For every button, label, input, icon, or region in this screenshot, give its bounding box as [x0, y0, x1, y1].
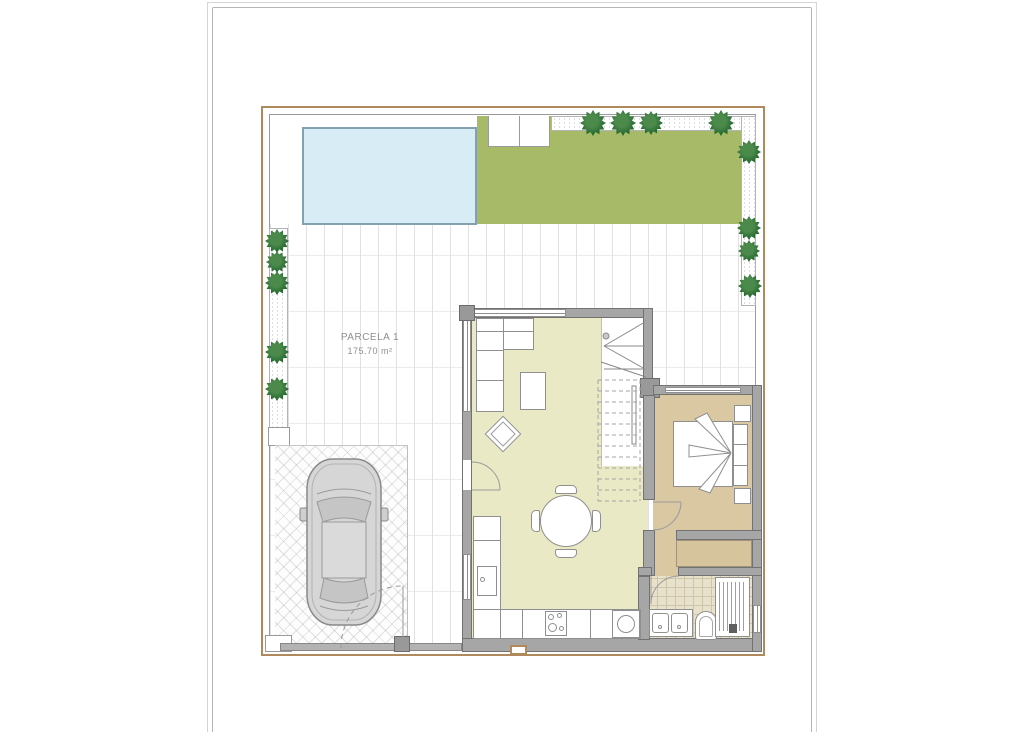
pillar-top-left [459, 305, 475, 321]
parcel-area-label: 175.70 m² [310, 346, 430, 356]
chair-north [555, 485, 577, 494]
parcel-name-label: PARCELA 1 [310, 332, 430, 343]
window-living-top [472, 309, 566, 317]
closet-block [676, 540, 752, 567]
toilet-bowl [699, 616, 713, 637]
shower-drain [729, 624, 737, 633]
washing-machine-door [617, 615, 635, 633]
basin-drain-right [677, 625, 681, 629]
window-living-left [463, 320, 471, 412]
sofa-cushion-line-3 [476, 380, 504, 381]
staircase-area [601, 318, 645, 466]
sofa-cushion-line-2 [476, 350, 504, 351]
pedestrian-gate-marker [510, 645, 527, 655]
nightstand-top [734, 405, 751, 422]
headboard-line-1 [733, 444, 748, 445]
window-shower [753, 605, 761, 633]
structure-divider-line [519, 116, 520, 146]
fence-bottom-bar [280, 643, 462, 651]
chair-east [592, 510, 601, 532]
washbasin-left [652, 613, 669, 633]
counter-divider-3 [522, 609, 523, 639]
window-bedroom [665, 387, 741, 393]
gate-pillar [394, 636, 410, 652]
wall-bedroom-bottom [676, 530, 762, 540]
counter-divider-1 [473, 540, 501, 541]
burner-4 [559, 626, 564, 631]
washbasin-right [671, 613, 688, 633]
sofa-left-section [476, 318, 504, 412]
wall-divider-upper [643, 395, 655, 500]
garden-corner-structure [488, 116, 550, 147]
gravel-strip-left [269, 228, 288, 445]
front-door-opening [463, 460, 471, 490]
sofa-cushion-line-1 [476, 331, 534, 332]
burner-2 [557, 613, 562, 618]
floor-plan-page: PARCELA 1 175.70 m² [0, 0, 1024, 732]
kitchen-counter-left [473, 516, 501, 612]
headboard-line-2 [733, 465, 748, 466]
counter-divider-2 [500, 609, 501, 639]
nightstand-bottom [734, 488, 751, 504]
chair-west [531, 510, 540, 532]
window-kitchen-left [463, 554, 471, 600]
dining-table [540, 495, 592, 547]
wall-bath-top-right [678, 567, 762, 576]
chair-south [555, 549, 577, 558]
bed [673, 421, 733, 487]
gravel-strip-right [741, 116, 756, 306]
burner-3 [548, 623, 557, 632]
sink-faucet [480, 577, 485, 582]
car-icon [303, 456, 385, 628]
wall-bath-top-left [638, 567, 652, 576]
gravel-strip-top [551, 116, 742, 131]
wall-right-main [643, 308, 653, 388]
coffee-table [520, 372, 546, 410]
basin-drain-left [658, 625, 662, 629]
planter-box [268, 427, 290, 446]
swimming-pool [302, 127, 477, 225]
counter-divider-4 [590, 609, 591, 639]
hallway-floor [653, 530, 678, 576]
burner-1 [548, 614, 554, 620]
headboard [733, 424, 748, 486]
wall-bottom [462, 638, 762, 652]
